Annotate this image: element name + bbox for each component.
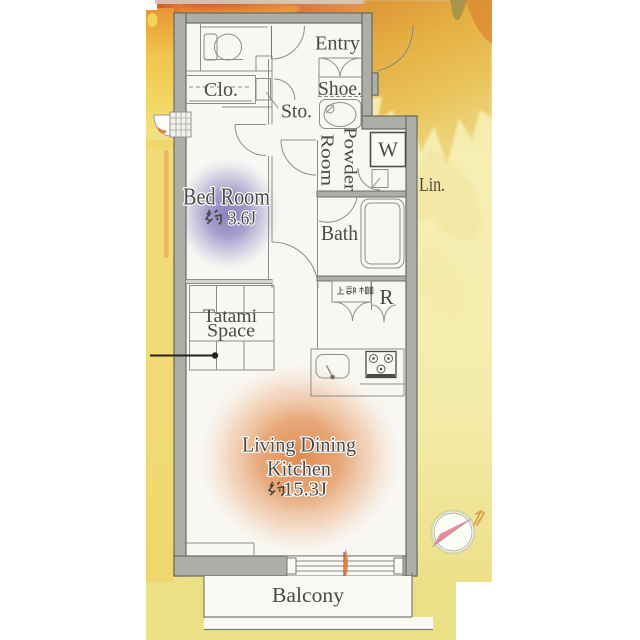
svg-text:Room: Room bbox=[318, 134, 338, 186]
svg-text:Lin.: Lin. bbox=[419, 174, 445, 196]
svg-text:R: R bbox=[379, 285, 393, 309]
svg-text:W: W bbox=[378, 138, 398, 162]
svg-text:Shoe.: Shoe. bbox=[318, 78, 362, 100]
svg-text:3.6J: 3.6J bbox=[228, 208, 256, 230]
svg-text:Kitchen: Kitchen bbox=[267, 457, 331, 481]
svg-text:Bed Room: Bed Room bbox=[183, 185, 270, 211]
svg-text:Space: Space bbox=[207, 321, 255, 342]
svg-text:15.3J: 15.3J bbox=[283, 479, 327, 501]
svg-text:Powder: Powder bbox=[341, 127, 361, 191]
svg-text:Bath: Bath bbox=[321, 221, 358, 245]
svg-text:Sto.: Sto. bbox=[281, 101, 312, 123]
svg-text:Entry: Entry bbox=[315, 33, 360, 55]
svg-text:Balcony: Balcony bbox=[272, 583, 345, 607]
svg-text:Living Dining: Living Dining bbox=[242, 433, 356, 457]
svg-text:Clo.: Clo. bbox=[204, 79, 238, 101]
